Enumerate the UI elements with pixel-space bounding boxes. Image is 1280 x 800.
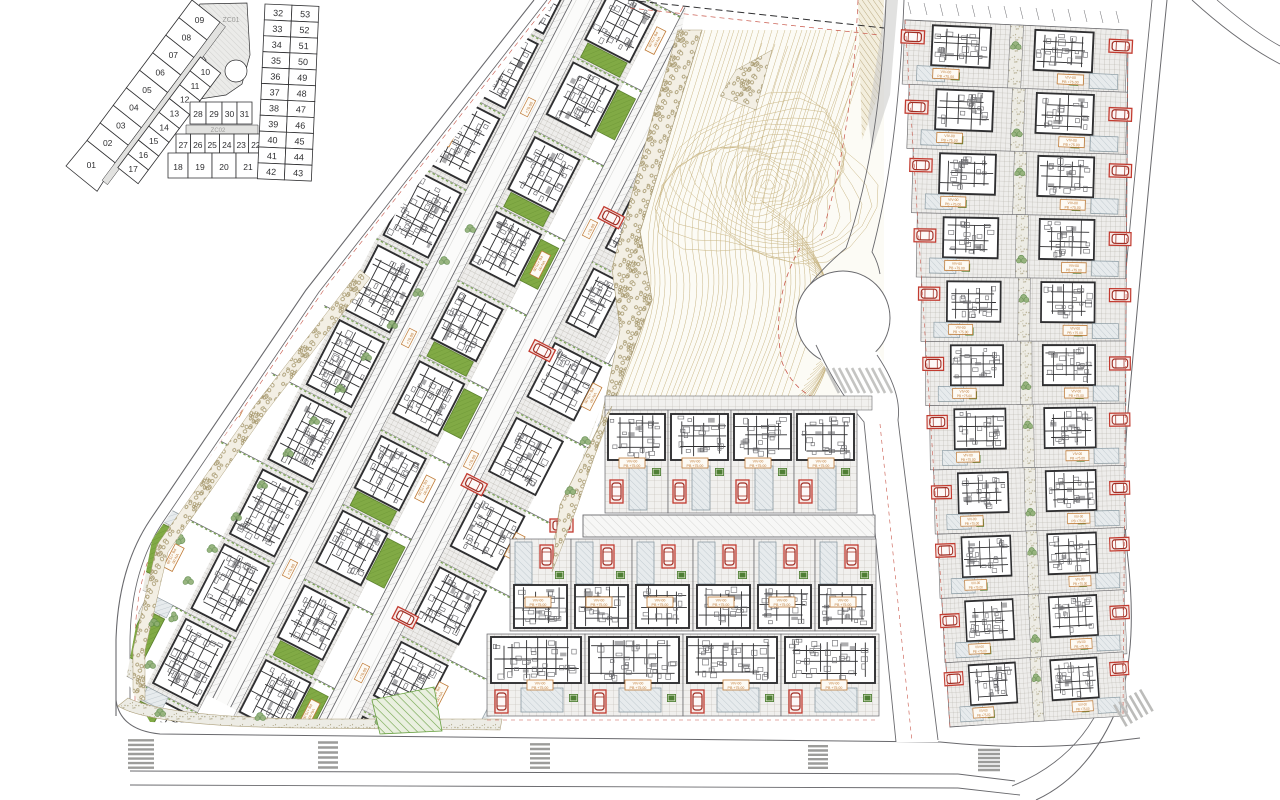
svg-text:07: 07 (169, 50, 179, 60)
svg-text:41: 41 (267, 151, 277, 161)
svg-text:12: 12 (180, 95, 190, 105)
svg-text:16: 16 (139, 150, 149, 160)
svg-text:21: 21 (243, 162, 253, 172)
svg-text:08: 08 (182, 33, 192, 43)
svg-text:13: 13 (170, 109, 180, 119)
svg-text:40: 40 (267, 135, 277, 145)
svg-text:49: 49 (297, 73, 307, 83)
svg-text:46: 46 (295, 120, 305, 130)
svg-text:51: 51 (298, 41, 308, 51)
svg-text:35: 35 (271, 56, 281, 66)
svg-text:45: 45 (294, 136, 304, 146)
svg-text:53: 53 (300, 9, 310, 19)
svg-text:42: 42 (266, 167, 276, 177)
svg-text:50: 50 (298, 57, 308, 67)
svg-text:14: 14 (159, 122, 169, 132)
svg-text:29: 29 (209, 109, 219, 119)
svg-text:05: 05 (142, 85, 152, 95)
svg-text:39: 39 (268, 119, 278, 129)
svg-text:17: 17 (128, 164, 138, 174)
svg-text:24: 24 (222, 140, 232, 150)
svg-text:43: 43 (293, 168, 303, 178)
svg-text:03: 03 (116, 120, 126, 130)
svg-text:52: 52 (299, 25, 309, 35)
svg-text:04: 04 (129, 103, 139, 113)
svg-text:11: 11 (191, 81, 200, 91)
svg-text:01: 01 (87, 160, 97, 170)
svg-text:09: 09 (195, 15, 205, 25)
svg-text:30: 30 (225, 109, 235, 119)
svg-text:ZC02: ZC02 (211, 128, 226, 134)
svg-text:ZC01: ZC01 (222, 17, 239, 24)
svg-text:34: 34 (272, 40, 282, 50)
svg-text:18: 18 (173, 162, 183, 172)
svg-text:23: 23 (236, 140, 246, 150)
svg-text:32: 32 (273, 8, 283, 18)
svg-text:02: 02 (103, 138, 113, 148)
svg-text:37: 37 (269, 87, 279, 97)
svg-text:26: 26 (193, 140, 203, 150)
svg-text:10: 10 (201, 67, 211, 77)
svg-text:19: 19 (195, 162, 205, 172)
svg-text:31: 31 (240, 109, 250, 119)
svg-text:25: 25 (207, 140, 217, 150)
svg-text:15: 15 (149, 136, 159, 146)
svg-text:47: 47 (296, 104, 306, 114)
svg-text:20: 20 (219, 162, 229, 172)
svg-text:36: 36 (270, 71, 280, 81)
svg-text:44: 44 (294, 152, 304, 162)
svg-text:28: 28 (193, 109, 203, 119)
svg-text:06: 06 (155, 68, 165, 78)
svg-text:48: 48 (296, 88, 306, 98)
svg-text:33: 33 (272, 24, 282, 34)
svg-text:27: 27 (178, 140, 188, 150)
svg-text:38: 38 (269, 103, 279, 113)
